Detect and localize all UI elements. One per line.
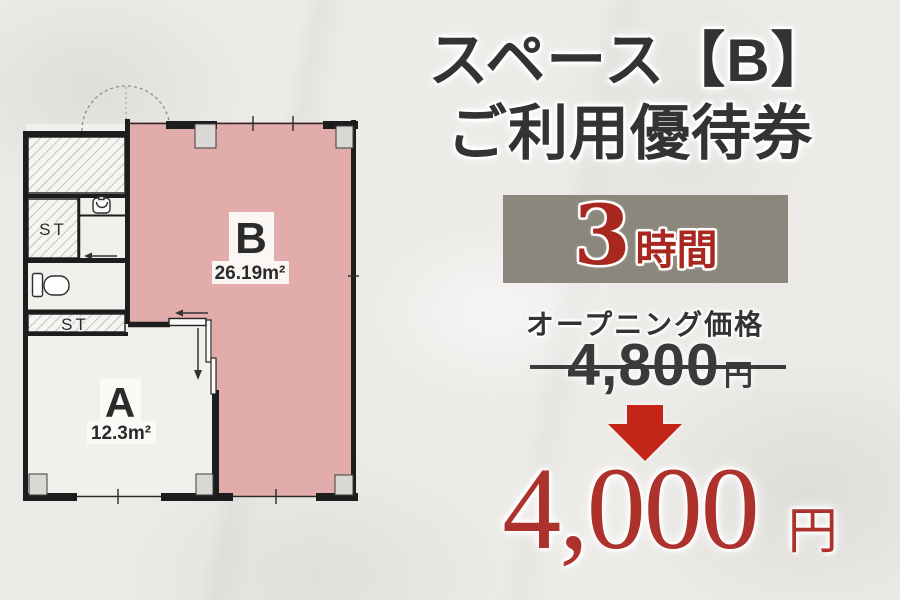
down-arrow-stem: [627, 405, 663, 425]
space-b-area-label: 26.19m²: [215, 263, 286, 284]
floor-plan: B 26.19m² A 12.3m² ST ST: [0, 0, 420, 600]
coupon-canvas: B 26.19m² A 12.3m² ST ST スペース【B】 ご利用優待券 …: [0, 0, 900, 600]
space-a-area-label: 12.3m²: [91, 423, 151, 444]
duration-badge: 3 時間: [503, 195, 788, 283]
storage-top-label: ST: [39, 220, 67, 239]
new-price-unit: 円: [788, 506, 838, 556]
title-line-2: ご利用優待券: [415, 97, 845, 170]
title-line-1: スペース【B】: [415, 24, 845, 97]
door-leaf: [169, 319, 206, 326]
coupon-title: スペース【B】 ご利用優待券: [415, 24, 845, 170]
toilet-icon: [33, 274, 70, 297]
space-b-label: B: [235, 214, 267, 263]
strikethrough-line: [530, 365, 786, 369]
sink-icon: [93, 197, 110, 214]
space-a-label: A: [105, 379, 135, 426]
storage-bottom-label: ST: [61, 315, 89, 334]
old-price: 4,800 円: [500, 336, 820, 398]
new-price-amount: 4,000: [502, 450, 758, 568]
new-price: 4,000 円: [450, 450, 890, 568]
duration-number: 3: [573, 195, 630, 279]
duration-unit: 時間: [636, 216, 718, 276]
